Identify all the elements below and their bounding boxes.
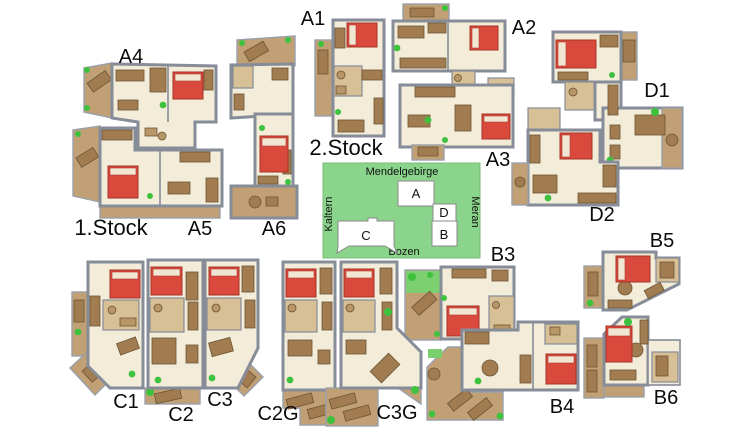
location-map: Mendelgebirge Kaltern Meran Bozen A D B … (323, 163, 481, 258)
c2-pillow (153, 269, 180, 276)
b4-terrace-table (428, 368, 440, 380)
map-building-c-label: C (361, 228, 370, 243)
a4-pillow (175, 74, 201, 81)
a1-lounger (318, 50, 328, 74)
a1-pillow (349, 25, 356, 45)
b4-plant (429, 411, 436, 418)
apartment-c1-label: C1 (113, 391, 139, 413)
apartment-a3-plan: A3 (400, 78, 514, 171)
c2-bathroom (150, 298, 184, 332)
map-north-label: Mendelgebirge (366, 166, 439, 178)
apartment-d1-label: D1 (644, 80, 670, 102)
c1-plant (129, 371, 136, 378)
d1-bathroom (565, 82, 595, 110)
map-building-a-label: A (412, 186, 421, 201)
apartment-a4-label: A4 (119, 46, 143, 68)
c1-plant (75, 329, 82, 336)
c1-pillow (112, 272, 138, 279)
map-building-d-label: D (439, 205, 448, 220)
apartment-b6-plan: B6 (584, 317, 680, 409)
apartment-b3-label: B3 (491, 244, 515, 266)
c3-bathroom (207, 298, 241, 330)
d2-bathroom (528, 108, 560, 130)
c3g-plant (384, 308, 392, 316)
a6-plant (259, 125, 265, 131)
apartment-c3-label: C3 (207, 389, 233, 411)
apartment-c2-plan: C2 (145, 260, 203, 426)
map-east-label: Meran (469, 196, 481, 227)
apartment-c2-label: C2 (168, 404, 194, 426)
a5-plant (147, 193, 153, 199)
a2-plant (394, 45, 401, 52)
c3g-plant (411, 386, 419, 394)
d2-pillow (562, 135, 570, 157)
a4-plant (84, 105, 90, 111)
c3g-pillow (346, 271, 372, 278)
apartment-a1-plan: A1 2.Stock (301, 8, 384, 160)
b6-balcony (604, 385, 644, 397)
a5-plant (75, 131, 81, 137)
apartment-c1-plan: C1 (70, 262, 143, 413)
b3-pillow (449, 308, 477, 315)
a2-lounger (410, 8, 434, 17)
a6-plant (285, 37, 291, 43)
second-floor-label: 2.Stock (309, 135, 383, 160)
b6-plant (624, 318, 632, 326)
a3-plant (425, 117, 432, 124)
a4-plant (84, 67, 90, 73)
b3-plant (408, 273, 416, 281)
apartment-a3-label: A3 (486, 149, 510, 171)
floorplan-canvas: A4 1.Stock A5 (0, 0, 754, 435)
b6-lounger (587, 370, 597, 392)
b4-pillow (548, 356, 574, 363)
a1-plant (335, 109, 341, 115)
apartment-a2-label: A2 (512, 17, 536, 39)
apartment-a1-label: A1 (301, 8, 325, 30)
b5-plant (587, 300, 594, 307)
apartment-a2-plan: A2 (393, 4, 536, 87)
c2g-pillow (288, 271, 314, 278)
a6-plant (285, 179, 291, 185)
map-building-b-label: B (440, 227, 449, 242)
apartment-b5-label: B5 (650, 230, 674, 252)
apartment-c2g-plan: C2G (257, 262, 337, 425)
d2-plant (545, 195, 552, 202)
apartment-c3-plan: C3 (205, 260, 263, 411)
c3-pillow (211, 269, 237, 276)
d1-lounger (623, 40, 635, 62)
a2-pillow (472, 28, 479, 48)
c3-plant (209, 375, 216, 382)
d2-terrace-table (515, 177, 525, 187)
apartment-b6-label: B6 (654, 387, 678, 409)
a6-study (231, 186, 297, 218)
d1-plant (609, 72, 615, 78)
b4-grass (428, 349, 442, 358)
apartment-c3g-label: C3G (376, 402, 417, 424)
first-floor-label: 1.Stock (74, 215, 148, 240)
apartment-a6-plan: A6 (231, 36, 297, 240)
apartment-a5-label: A5 (188, 218, 212, 240)
c2g-plant (287, 377, 294, 384)
a2-plant (442, 5, 448, 11)
d1-pillow (558, 42, 566, 66)
d1-plant (651, 108, 659, 116)
apartment-a6-label: A6 (262, 218, 286, 240)
c1-lounger (74, 300, 84, 322)
a6-pillow (262, 138, 286, 146)
apartment-b4-label: B4 (550, 396, 574, 418)
a1-plant (318, 41, 324, 47)
b3-plant (427, 272, 433, 278)
apartment-b5-plan: B5 (584, 230, 679, 310)
c3g-plant (327, 416, 335, 424)
apartment-d2-label: D2 (589, 204, 615, 226)
b6-pillow (608, 328, 630, 336)
map-west-label: Kaltern (323, 197, 335, 232)
b3-plant (434, 331, 440, 337)
b6-lounger (587, 345, 597, 367)
b5-pillow (618, 258, 625, 280)
b3-plant (441, 295, 447, 301)
b4-plant (475, 378, 482, 385)
a4-plant (160, 102, 167, 109)
b4-plant (497, 413, 504, 420)
a5-pillow (110, 168, 136, 175)
a3-plant (442, 137, 448, 143)
a3-pillow (484, 116, 508, 122)
c2-plant (155, 377, 162, 384)
a6-plant (239, 40, 245, 46)
apartment-c2g-label: C2G (257, 403, 298, 425)
b5-lounger (588, 272, 598, 296)
